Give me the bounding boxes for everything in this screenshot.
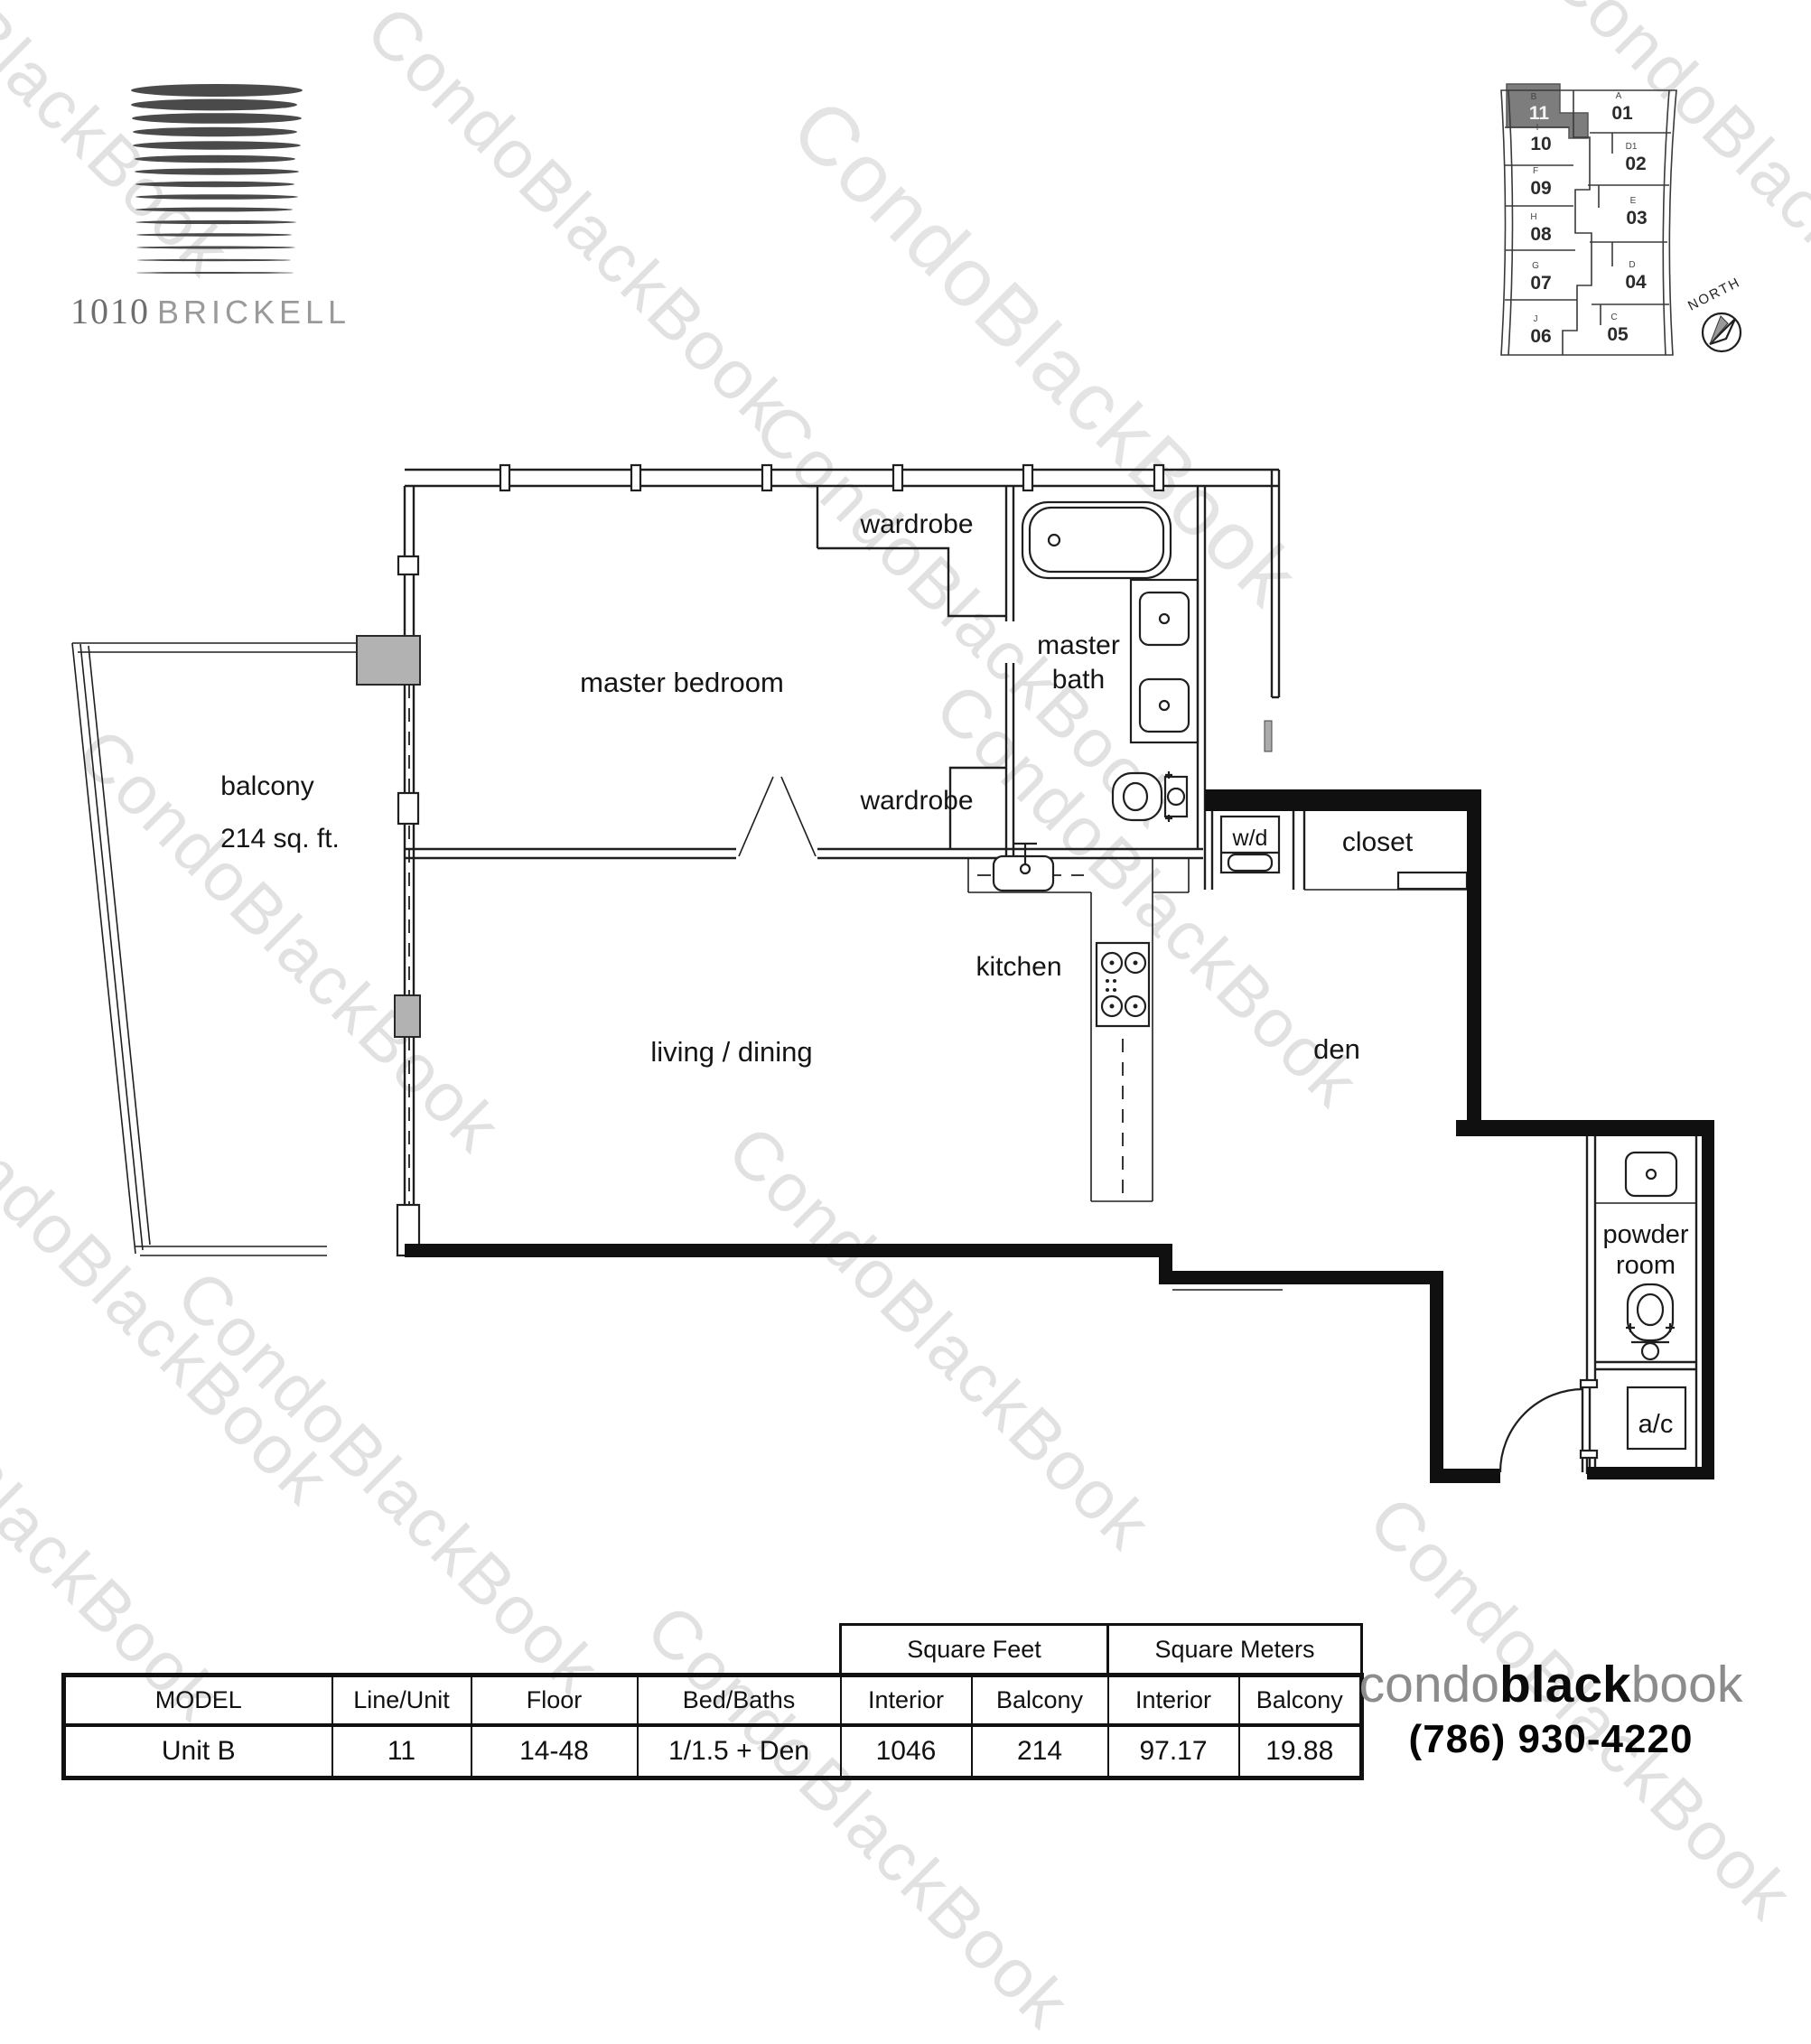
den-bottom-wall <box>1456 1120 1714 1136</box>
condoblackbook-wordmark: condoblackbook <box>1351 1657 1750 1712</box>
bedroom-double-door <box>739 777 816 856</box>
kitchen-label: kitchen <box>976 952 1061 982</box>
master-bedroom: master bedroom <box>405 667 1203 858</box>
den-right-wall <box>1467 811 1481 1127</box>
keyplan-unit-number: 02 <box>1625 154 1646 174</box>
washer-dryer: w/d <box>1221 817 1279 873</box>
building-logo: 1010BRICKELL <box>70 84 350 331</box>
keyplan-unit-number: 01 <box>1611 103 1633 124</box>
group-header-square-feet: Square Feet <box>841 1625 1108 1675</box>
master-bedroom-label: master bedroom <box>580 667 784 698</box>
north-compass-icon: NORTH <box>1685 275 1743 351</box>
wordmark-condo: condo <box>1359 1656 1499 1713</box>
living-dining-label: living / dining <box>650 1036 812 1068</box>
cell-interior-sm: 97.17 <box>1108 1725 1239 1778</box>
floor-plan-canvas: 1010BRICKELL B 11 I 10 F 09 H 08 G 07 J … <box>0 0 1811 1809</box>
washer-dryer-label: w/d <box>1232 826 1268 851</box>
col-header-interior-sm: Interior <box>1108 1675 1239 1726</box>
keyplan-unit-letter: H <box>1530 212 1536 222</box>
den-label: den <box>1313 1033 1360 1065</box>
door-swing-arc <box>1500 1389 1583 1472</box>
keyplan-unit-number: 10 <box>1530 134 1551 154</box>
unit-data-table: Square Feet Square Meters MODEL Line/Uni… <box>61 1623 1364 1780</box>
keyplan-unit-number: 03 <box>1626 208 1647 229</box>
ac-label: a/c <box>1638 1410 1674 1439</box>
toilet <box>1113 771 1187 822</box>
vanity-sink <box>1140 679 1189 732</box>
balcony: balcony 214 sq. ft. <box>72 486 420 1255</box>
col-header-model: MODEL <box>64 1675 332 1726</box>
bathtub <box>1022 502 1171 578</box>
keyplan: B 11 I 10 F 09 H 08 G 07 J 06 A 01 D1 02… <box>1501 84 1676 355</box>
keyplan-unit-number: 08 <box>1530 224 1552 245</box>
keyplan-unit-letter: B <box>1531 92 1537 102</box>
keyplan-unit-letter: I <box>1536 123 1539 133</box>
powder-room-label-1: powder <box>1602 1220 1688 1249</box>
powder-room-label-2: room <box>1616 1251 1676 1280</box>
wardrobes: wardrobe wardrobe <box>817 486 1013 858</box>
condoblackbook-branding: condoblackbook (786) 930-4220 <box>1351 1657 1750 1762</box>
wordmark-black: black <box>1499 1656 1631 1713</box>
master-bath: master bath <box>1022 486 1205 849</box>
table-group-header-row: Square Feet Square Meters <box>64 1625 1362 1675</box>
cell-balcony-sf: 214 <box>972 1725 1108 1778</box>
kitchen-sink <box>994 844 1053 891</box>
keyplan-unit-number: 04 <box>1625 272 1647 293</box>
vanity-sink <box>1140 593 1189 645</box>
col-header-balcony-sm: Balcony <box>1239 1675 1362 1726</box>
living-dining: living / dining <box>405 1036 1500 1483</box>
keyplan-unit-number: 09 <box>1530 178 1551 199</box>
master-bath-label-2: bath <box>1052 665 1105 695</box>
cell-bed-baths: 1/1.5 + Den <box>638 1725 841 1778</box>
keyplan-unit-letter: G <box>1532 261 1539 271</box>
building-logo-text: 1010BRICKELL <box>70 291 350 331</box>
closet-label: closet <box>1342 827 1414 857</box>
closet-top-wall <box>1205 789 1481 811</box>
bath-vanity <box>1131 580 1198 742</box>
ac-closet: a/c <box>1628 1387 1685 1449</box>
balcony-area-label: 214 sq. ft. <box>220 824 340 854</box>
cell-interior-sf: 1046 <box>841 1725 972 1778</box>
living-bottom-wall <box>405 1244 1172 1257</box>
powder-sink <box>1626 1153 1676 1196</box>
table-header-row: MODEL Line/Unit Floor Bed/Baths Interior… <box>64 1675 1362 1726</box>
col-header-balcony-sf: Balcony <box>972 1675 1108 1726</box>
entry-door <box>1500 1386 1590 1472</box>
kitchen: kitchen <box>968 844 1189 1201</box>
keyplan-unit-letter: D1 <box>1626 142 1638 152</box>
keyplan-unit-letter: A <box>1616 91 1622 101</box>
cell-floor: 14-48 <box>471 1725 638 1778</box>
column <box>395 995 420 1037</box>
cell-model: Unit B <box>64 1725 332 1778</box>
keyplan-unit-number: 06 <box>1530 326 1551 347</box>
powder-room-block: powder room a/c <box>1581 1136 1714 1479</box>
col-header-interior-sf: Interior <box>841 1675 972 1726</box>
wardrobe-bottom-label: wardrobe <box>859 786 973 816</box>
stove <box>1097 943 1149 1026</box>
utility-closets: w/d closet <box>1205 789 1481 890</box>
phone-number: (786) 930-4220 <box>1351 1717 1750 1762</box>
den: den <box>1313 811 1714 1136</box>
wordmark-book: book <box>1631 1656 1743 1713</box>
balcony-label: balcony <box>220 771 313 801</box>
keyplan-unit-letter: E <box>1630 196 1637 206</box>
column <box>357 636 420 685</box>
group-header-square-meters: Square Meters <box>1108 1625 1362 1675</box>
keyplan-unit-letter: C <box>1610 313 1617 322</box>
keyplan-unit-letter: D <box>1629 260 1635 270</box>
powder-toilet <box>1626 1284 1675 1359</box>
table-data-row: Unit B 11 14-48 1/1.5 + Den 1046 214 97.… <box>64 1725 1362 1778</box>
keyplan-unit-number: 07 <box>1530 273 1551 294</box>
cell-balcony-sm: 19.88 <box>1239 1725 1362 1778</box>
floor-plan: balcony 214 sq. ft. master bedroom wardr… <box>72 465 1714 1483</box>
keyplan-unit-letter: F <box>1533 166 1538 176</box>
master-bath-label-1: master <box>1037 630 1120 660</box>
col-header-floor: Floor <box>471 1675 638 1726</box>
keyplan-unit-number: 11 <box>1529 103 1550 124</box>
keyplan-unit-number: 05 <box>1607 324 1629 345</box>
north-label: NORTH <box>1685 275 1743 314</box>
closet-shelf <box>1398 873 1467 889</box>
keyplan-unit-letter: J <box>1534 314 1538 324</box>
col-header-line-unit: Line/Unit <box>332 1675 471 1726</box>
cell-line-unit: 11 <box>332 1725 471 1778</box>
wardrobe-top-label: wardrobe <box>859 509 973 539</box>
col-header-bed-baths: Bed/Baths <box>638 1675 841 1726</box>
